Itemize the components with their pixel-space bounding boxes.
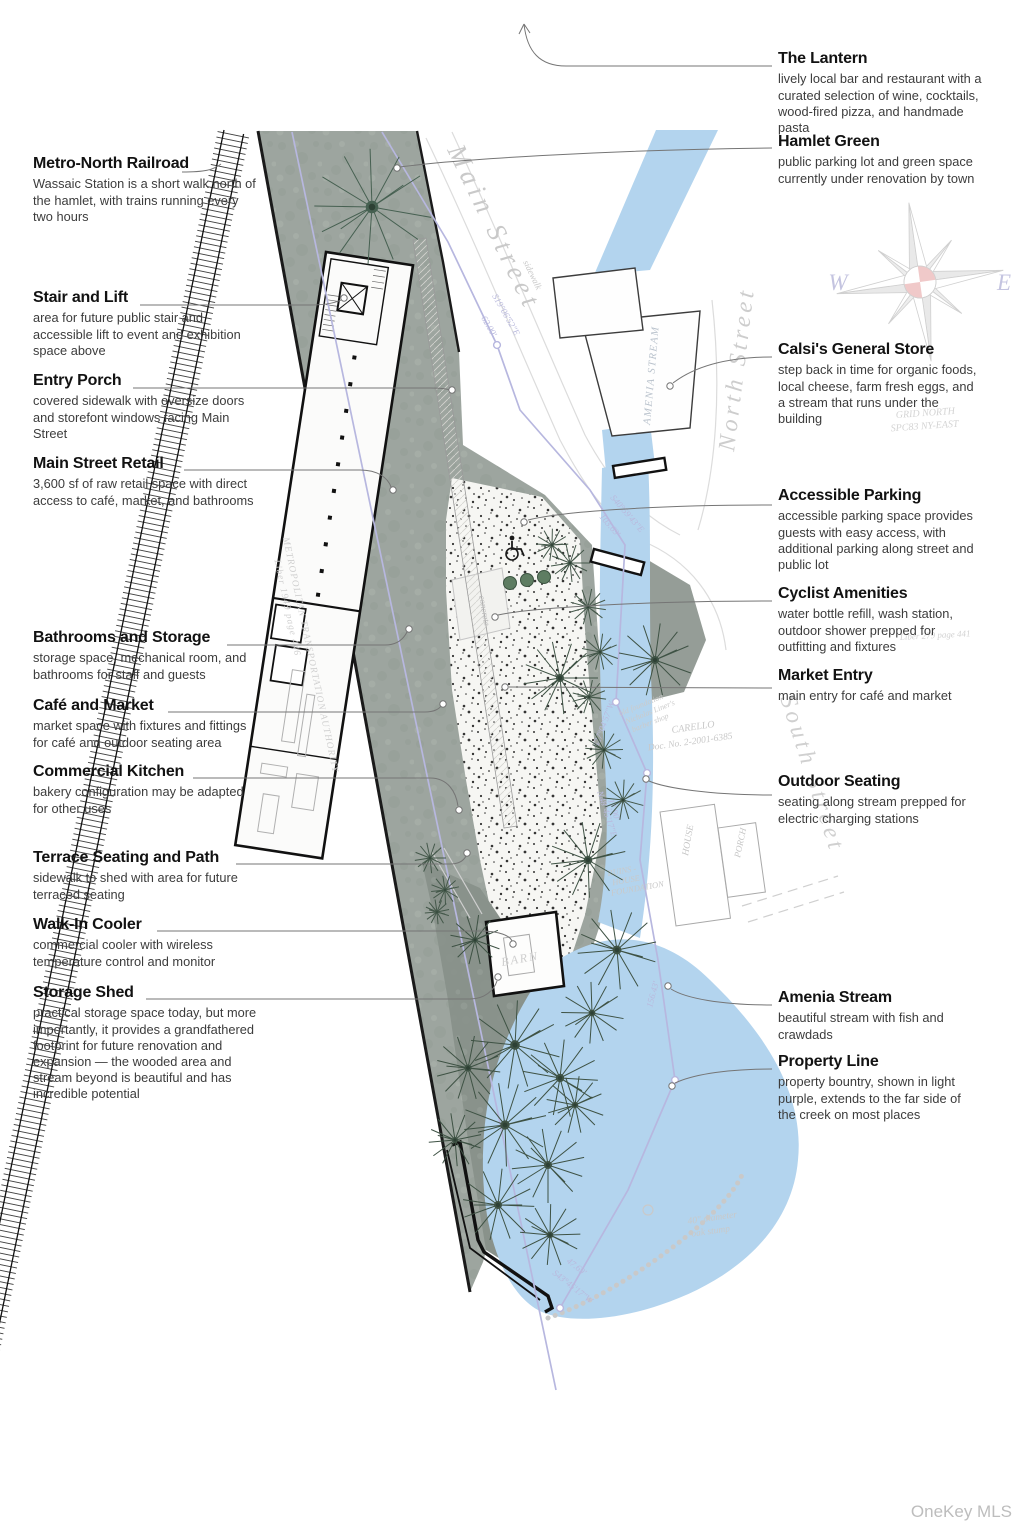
annotation-title: Stair and Lift <box>33 289 261 307</box>
neighbor-house <box>660 804 765 926</box>
annotation-title: Metro-North Railroad <box>33 155 261 173</box>
annotation-body: lively local bar and restaurant with a c… <box>778 71 982 135</box>
annotation-body: seating along stream prepped for electri… <box>778 794 982 826</box>
annotation-title: Calsi's General Store <box>778 341 982 359</box>
annotation-body: public parking lot and green space curre… <box>778 154 982 186</box>
annotation-title: Storage Shed <box>33 984 261 1002</box>
annotation-bathrooms-storage: Bathrooms and Storage storage space, mec… <box>33 629 261 683</box>
annotation-body: commercial cooler with wireless temperat… <box>33 937 261 969</box>
annotation-title: Hamlet Green <box>778 133 982 151</box>
annotation-title: Walk-In Cooler <box>33 916 261 934</box>
annotation-body: practical storage space today, but more … <box>33 1005 261 1102</box>
annotation-body: property bountry, shown in light purple,… <box>778 1074 982 1122</box>
annotation-title: Entry Porch <box>33 372 261 390</box>
annotation-cafe-market: Café and Market market space with fixtur… <box>33 697 261 751</box>
annotation-entry-porch: Entry Porch covered sidewalk with oversi… <box>33 372 261 442</box>
svg-text:Doc. No. 2-2001-6385: Doc. No. 2-2001-6385 <box>646 732 733 754</box>
annotation-body: covered sidewalk with oversize doors and… <box>33 393 261 441</box>
annotation-the-lantern: The Lantern lively local bar and restaur… <box>778 50 982 136</box>
compass-east-letter: E <box>996 270 1011 295</box>
annotation-body: main entry for café and market <box>778 688 982 704</box>
annotation-body: storage space, mechanical room, and bath… <box>33 650 261 682</box>
annotation-body: step back in time for organic foods, loc… <box>778 362 982 426</box>
annotation-body: accessible parking space provides guests… <box>778 508 982 572</box>
site-plan-page: Main Street North Street South Street AM… <box>0 0 1024 1536</box>
annotation-terrace-seating: Terrace Seating and Path sidewalk to she… <box>33 849 261 903</box>
annotation-hamlet-green: Hamlet Green public parking lot and gree… <box>778 133 982 187</box>
annotation-body: area for future public stair and accessi… <box>33 310 261 358</box>
annotation-walk-in-cooler: Walk-In Cooler commercial cooler with wi… <box>33 916 261 970</box>
annotation-cyclist-amenities: Cyclist Amenities water bottle refill, w… <box>778 585 982 655</box>
annotation-title: Terrace Seating and Path <box>33 849 261 867</box>
annotation-commercial-kitchen: Commercial Kitchen bakery configuration … <box>33 763 261 817</box>
svg-text:CARELLO: CARELLO <box>671 719 715 736</box>
annotation-calsis-store: Calsi's General Store step back in time … <box>778 341 982 427</box>
annotation-body: market space with fixtures and fittings … <box>33 718 261 750</box>
annotation-stair-lift: Stair and Lift area for future public st… <box>33 289 261 359</box>
annotation-body: beautiful stream with fish and crawdads <box>778 1010 982 1042</box>
annotation-title: Accessible Parking <box>778 487 982 505</box>
annotation-title: Market Entry <box>778 667 982 685</box>
annotation-storage-shed: Storage Shed practical storage space tod… <box>33 984 261 1102</box>
compass-west-letter: W <box>828 270 849 295</box>
bathroom-2 <box>271 645 308 685</box>
annotation-title: Cyclist Amenities <box>778 585 982 603</box>
annotation-amenia-stream: Amenia Stream beautiful stream with fish… <box>778 989 982 1043</box>
annotation-body: Wassaic Station is a short walk north of… <box>33 176 261 224</box>
annotation-title: Main Street Retail <box>33 455 261 473</box>
annotation-body: sidewalk to shed with area for future te… <box>33 870 261 902</box>
north-street-label: North Street <box>714 286 760 454</box>
annotation-outdoor-seating: Outdoor Seating seating along stream pre… <box>778 773 982 827</box>
annotation-market-entry: Market Entry main entry for café and mar… <box>778 667 982 705</box>
annotation-body: 3,600 sf of raw retail space with direct… <box>33 476 261 508</box>
watermark: OneKey MLS <box>911 1502 1012 1522</box>
annotation-title: The Lantern <box>778 50 982 68</box>
annotation-metro-north: Metro-North Railroad Wassaic Station is … <box>33 155 261 225</box>
annotation-property-line: Property Line property bountry, shown in… <box>778 1053 982 1123</box>
annotation-title: Property Line <box>778 1053 982 1071</box>
svg-text:62.00': 62.00' <box>479 314 499 339</box>
calsis-general-store <box>553 268 700 436</box>
annotation-title: Outdoor Seating <box>778 773 982 791</box>
annotation-accessible-parking: Accessible Parking accessible parking sp… <box>778 487 982 573</box>
annotation-body: bakery configuration may be adapted for … <box>33 784 261 816</box>
annotation-title: Amenia Stream <box>778 989 982 1007</box>
annotation-title: Café and Market <box>33 697 261 715</box>
annotation-title: Commercial Kitchen <box>33 763 261 781</box>
annotation-body: water bottle refill, wash station, outdo… <box>778 606 982 654</box>
annotation-title: Bathrooms and Storage <box>33 629 261 647</box>
annotation-main-street-retail: Main Street Retail 3,600 sf of raw retai… <box>33 455 261 509</box>
